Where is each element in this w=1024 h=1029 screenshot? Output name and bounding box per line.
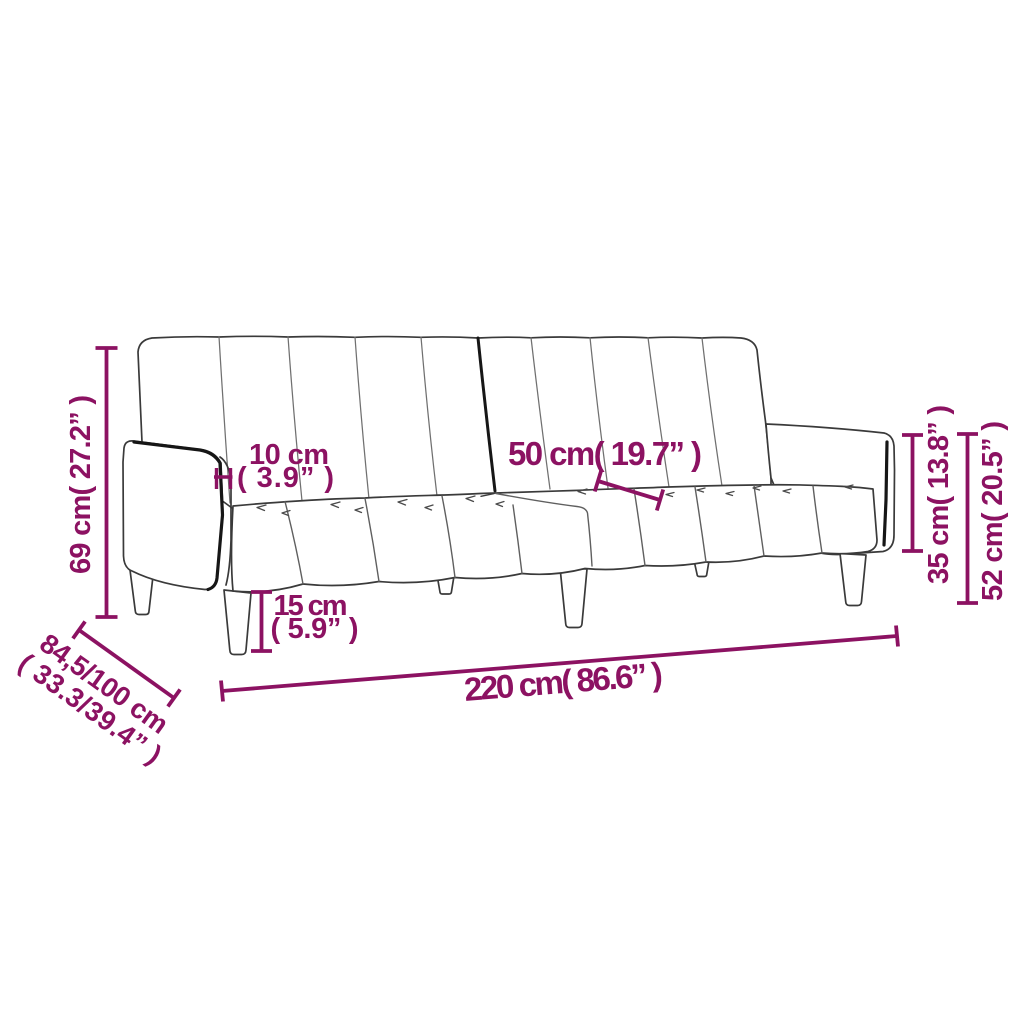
svg-text:50 cm( 19.7” ): 50 cm( 19.7” ) (508, 435, 702, 472)
svg-text:( 5.9” ): ( 5.9” ) (271, 613, 359, 645)
svg-text:69 cm( 27.2” ): 69 cm( 27.2” ) (65, 395, 97, 574)
svg-text:( 3.9” ): ( 3.9” ) (237, 462, 334, 494)
svg-text:52 cm( 20.5” ): 52 cm( 20.5” ) (977, 421, 1009, 601)
svg-text:35 cm( 13.8” ): 35 cm( 13.8” ) (923, 405, 955, 584)
